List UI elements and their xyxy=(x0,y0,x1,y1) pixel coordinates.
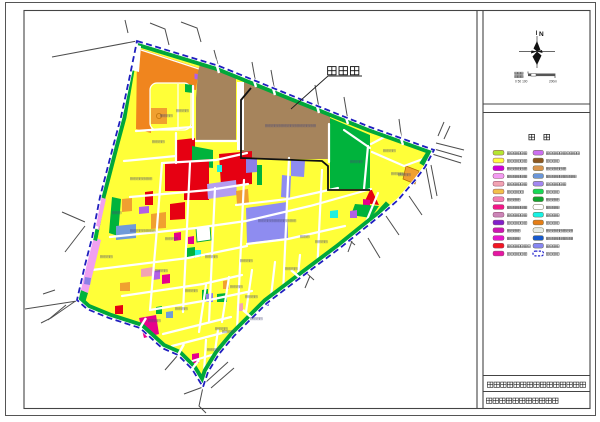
svg-text:200m: 200m xyxy=(549,80,557,84)
svg-text:0 50 100: 0 50 100 xyxy=(515,80,528,84)
svg-text:N: N xyxy=(539,31,544,38)
